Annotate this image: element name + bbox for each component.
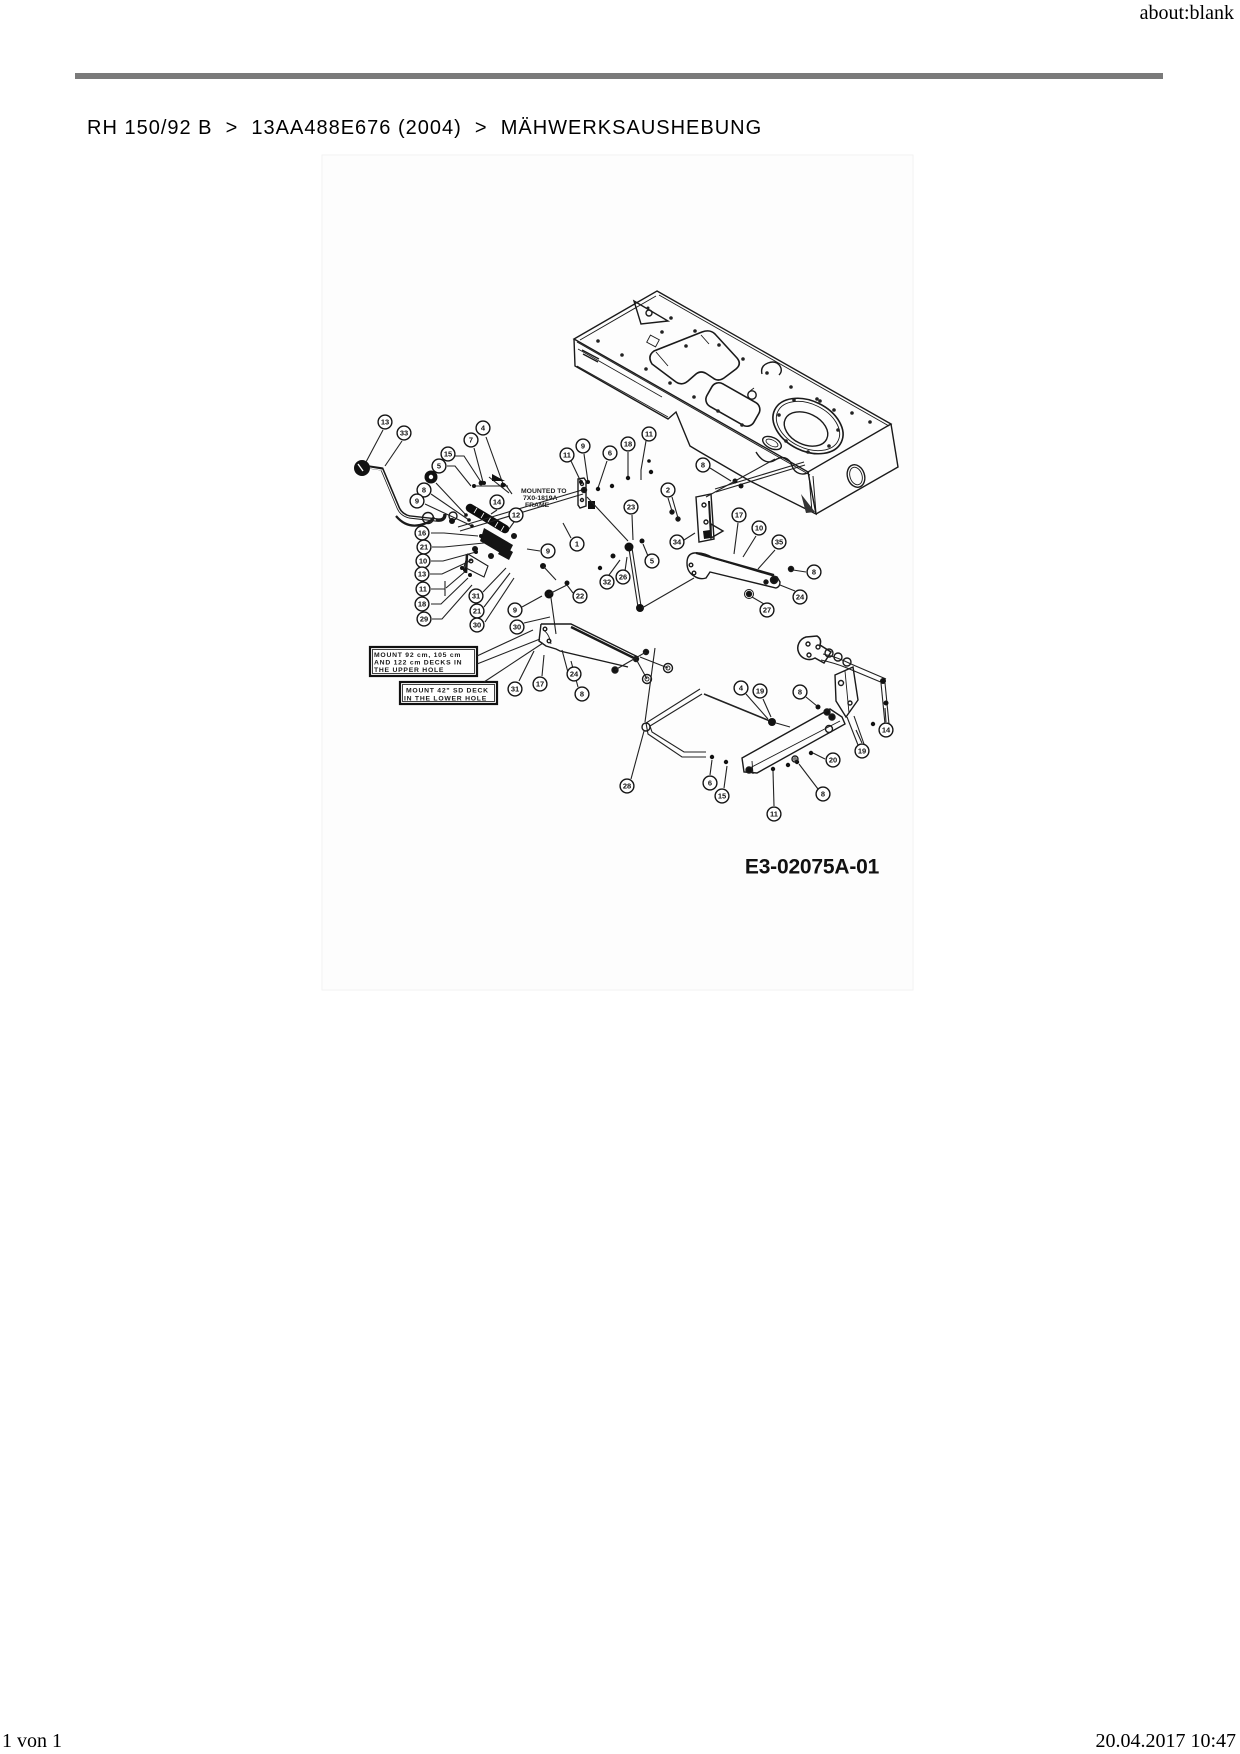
- svg-text:17: 17: [536, 680, 544, 689]
- svg-text:13: 13: [381, 418, 389, 427]
- svg-text:17: 17: [735, 511, 743, 520]
- svg-text:8: 8: [798, 688, 802, 697]
- svg-text:14: 14: [493, 498, 502, 507]
- svg-text:7: 7: [469, 436, 473, 445]
- svg-text:24: 24: [796, 593, 805, 602]
- svg-text:11: 11: [770, 810, 778, 819]
- svg-text:29: 29: [420, 615, 428, 624]
- svg-text:9: 9: [415, 497, 419, 506]
- svg-text:MOUNT 42" SD DECK: MOUNT 42" SD DECK: [406, 688, 489, 695]
- svg-text:9: 9: [513, 606, 517, 615]
- svg-text:22: 22: [576, 592, 584, 601]
- svg-text:8: 8: [580, 690, 584, 699]
- svg-text:16: 16: [418, 529, 426, 538]
- svg-text:E3-02075A-01: E3-02075A-01: [745, 856, 880, 879]
- svg-text:MOUNTED TO: MOUNTED TO: [521, 488, 567, 495]
- svg-text:9: 9: [546, 547, 550, 556]
- svg-text:19: 19: [858, 747, 866, 756]
- svg-text:IN THE LOWER HOLE: IN THE LOWER HOLE: [404, 696, 487, 703]
- svg-text:31: 31: [511, 685, 519, 694]
- svg-text:2: 2: [666, 486, 670, 495]
- svg-text:13: 13: [418, 570, 426, 579]
- svg-text:18: 18: [418, 600, 426, 609]
- svg-text:26: 26: [619, 573, 627, 582]
- svg-text:11: 11: [563, 451, 571, 460]
- svg-text:31: 31: [472, 592, 480, 601]
- svg-text:AND 122 cm DECKS IN: AND 122 cm DECKS IN: [374, 660, 462, 667]
- svg-text:11: 11: [419, 585, 427, 594]
- svg-text:14: 14: [882, 726, 891, 735]
- svg-text:21: 21: [473, 607, 481, 616]
- svg-text:8: 8: [821, 790, 825, 799]
- svg-text:15: 15: [444, 450, 452, 459]
- svg-text:34: 34: [673, 538, 682, 547]
- svg-text:32: 32: [603, 578, 611, 587]
- svg-text:33: 33: [400, 429, 408, 438]
- svg-text:8: 8: [812, 568, 816, 577]
- svg-text:23: 23: [627, 503, 635, 512]
- svg-text:7X0-1819A: 7X0-1819A: [523, 495, 557, 502]
- svg-text:FRAME: FRAME: [525, 502, 550, 509]
- svg-text:15: 15: [718, 792, 726, 801]
- svg-text:30: 30: [473, 621, 481, 630]
- svg-text:19: 19: [756, 687, 764, 696]
- svg-text:6: 6: [708, 779, 712, 788]
- svg-text:10: 10: [419, 557, 427, 566]
- svg-text:6: 6: [608, 449, 612, 458]
- svg-text:9: 9: [581, 442, 585, 451]
- svg-text:5: 5: [650, 557, 654, 566]
- svg-text:28: 28: [623, 782, 631, 791]
- svg-text:18: 18: [624, 440, 632, 449]
- svg-text:35: 35: [775, 538, 783, 547]
- svg-text:THE UPPER HOLE: THE UPPER HOLE: [374, 667, 444, 674]
- svg-text:20: 20: [829, 756, 837, 765]
- svg-text:24: 24: [570, 670, 579, 679]
- svg-text:8: 8: [422, 486, 426, 495]
- svg-text:11: 11: [645, 430, 653, 439]
- svg-text:5: 5: [437, 462, 441, 471]
- svg-text:MOUNT 92 cm, 105 cm: MOUNT 92 cm, 105 cm: [374, 652, 461, 659]
- svg-text:12: 12: [512, 511, 520, 520]
- svg-text:8: 8: [701, 461, 705, 470]
- svg-text:30: 30: [513, 623, 521, 632]
- svg-text:21: 21: [420, 543, 428, 552]
- svg-text:10: 10: [755, 524, 763, 533]
- svg-text:27: 27: [763, 606, 771, 615]
- svg-text:1: 1: [575, 540, 579, 549]
